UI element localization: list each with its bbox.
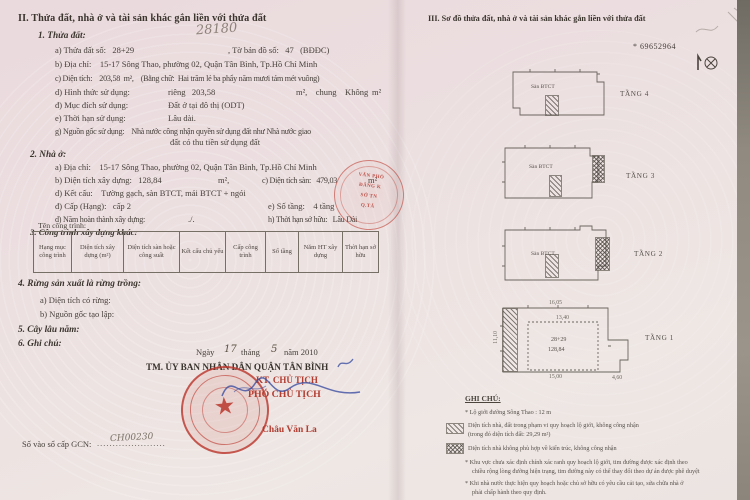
date-year: năm 2010 (284, 348, 318, 358)
stairwell-hatch-t4 (546, 96, 558, 115)
forest-area-label: a) Diện tích có rừng: (40, 296, 111, 306)
north-arrow-icon (694, 52, 720, 74)
table-header-cell: Diện tích xây dựng (m²) (72, 232, 124, 272)
floor-label-tang1: TẦNG 1 (645, 334, 674, 342)
house-address-line: a) Địa chỉ: 15-17 Sông Thao, phường 02, … (55, 163, 317, 173)
floor-label-tang2: TẦNG 2 (634, 250, 663, 258)
forest-section-title: 4. Rừng sản xuất là rừng trồng: (18, 279, 141, 290)
legend-swatch-arch-hatch (447, 444, 463, 453)
floor-slab-label: Sàn BTCT (531, 251, 555, 257)
parcel-number-on-plan: 28+29 (551, 337, 566, 344)
section3-heading: III. Sơ đồ thửa đất, nhà ở và tài sản kh… (428, 14, 645, 23)
floorplan-tang-2 (480, 222, 645, 286)
house-storeys-line: e) Số tầng: 4 tầng (268, 202, 334, 212)
house-section-title: 2. Nhà ở: (30, 150, 66, 161)
table-header-cell: Cấp công trình (226, 232, 266, 272)
use-origin-line1: g) Nguồn gốc sử dụng: Nhà nước công nhận… (55, 127, 311, 136)
house-floor-area: c) Diện tích sàn: 479,03 (262, 176, 337, 185)
constructions-table: Hạng mục công trình Diện tích xây dựng (… (33, 231, 379, 273)
use-origin-line2: đất có thu tiền sử dụng đất (170, 138, 260, 148)
handwritten-note: 28180 (196, 22, 238, 40)
floor-slab-label: Sàn BTCT (529, 164, 553, 170)
legend-note2-line2: phải chấp hành theo quy định. (472, 489, 547, 496)
parcel-section-title: 1. Thửa đất: (38, 31, 86, 42)
date-day-handwritten: 17 (224, 344, 237, 356)
legend-title: GHI CHÚ: (465, 395, 501, 404)
stairwell-hatch-t3 (550, 176, 561, 196)
use-form-label: d) Hình thức sử dụng: (55, 88, 130, 98)
legend-item1-line1: Diện tích nhà, đất trong phạm vi quy hoạ… (468, 422, 639, 429)
dim-bottom: 15,00 (549, 374, 562, 381)
legend-note2-line1: * Khi nhà nước thực hiện quy hoạch hoặc … (465, 480, 684, 487)
house-year-value: ./. (188, 215, 195, 225)
floor-slab-label: Sàn BTCT (531, 84, 555, 90)
use-form-common: m², chung Không (296, 88, 368, 98)
use-term-value: Lâu dài. (168, 114, 196, 124)
dim-right: 4,60 (612, 375, 622, 382)
road-corridor-hatch-t1 (503, 309, 517, 371)
table-header-cell: Kết cấu chủ yếu (180, 232, 226, 272)
unrecognized-area-hatch-t2 (596, 238, 609, 270)
use-form-unit: m² (372, 88, 381, 98)
floor-label-tang4: TẦNG 4 (620, 90, 649, 98)
gcn-entry-label: Số vào sổ cấp GCN: (22, 440, 91, 450)
signer-name: Châu Văn La (262, 425, 317, 436)
use-term-label: e) Thời hạn sử dụng: (55, 114, 126, 124)
dim-inner: 13,40 (556, 315, 569, 322)
unrecognized-area-hatch-t3 (593, 156, 604, 182)
house-build-area-unit: m², (218, 176, 229, 186)
use-purpose-label: đ) Mục đích sử dụng: (55, 101, 128, 111)
table-header-cell: Hạng mục công trình (34, 232, 72, 272)
date-prefix: Ngày (196, 348, 214, 358)
floor-label-tang3: TẦNG 3 (626, 172, 655, 180)
floorplan-tang-3 (480, 142, 645, 208)
perennial-section-title: 5. Cây lâu năm: (18, 325, 79, 336)
page-fold-shadow (388, 0, 406, 500)
use-form-private: riêng 203,58 (168, 88, 215, 98)
use-purpose-value: Đất ở tại đô thị (ODT) (168, 101, 245, 111)
construction-name-label: Tên công trình: (38, 222, 86, 231)
table-header-cell: Thời hạn sở hữu (343, 232, 378, 272)
serial-number: * 69652964 (633, 42, 676, 51)
legend-swatch-road-hatch (447, 424, 463, 433)
photo-background-edge (737, 0, 750, 500)
table-header-cell: Diện tích sàn hoặc công suất (124, 232, 180, 272)
forest-origin-label: b) Nguồn gốc tạo lập: (40, 310, 114, 320)
legend-note1-line1: * Khu vực chưa xác định chính xác ranh q… (465, 459, 688, 466)
parcel-address-line: b) Địa chỉ: 15-17 Sông Thao, phường 02, … (55, 60, 317, 70)
dim-left: 11,10 (493, 331, 500, 344)
house-structure-line: d) Kết cấu: Tường gạch, sàn BTCT, mái BT… (55, 189, 246, 199)
legend-note1-line2: chiều rộng lòng đường hiện trạng, tim đư… (472, 468, 700, 475)
notes-section-title: 6. Ghi chú: (18, 339, 62, 350)
legend-item1-line2: (trong đó diện tích đất: 29,29 m²) (468, 431, 550, 438)
parcel-area-line: c) Diện tích: 203,58 m², (Bằng chữ: Hai … (55, 74, 319, 83)
map-sheet-line: , Tờ bản đồ số: 47 (BĐĐC) (228, 46, 329, 56)
house-grade-line: đ) Cấp (Hạng): cấp 2 (55, 202, 131, 212)
table-header-cell: Số tầng (266, 232, 299, 272)
date-month-label: tháng (241, 348, 260, 358)
certificate-scan-page: II. Thửa đất, nhà ở và tài sản khác gắn … (0, 0, 750, 500)
dim-top: 16,05 (549, 300, 562, 307)
legend-road-width: * Lộ giới đường Sông Thao : 12 m (465, 409, 551, 416)
parcel-number-line: a) Thửa đất số: 28+29 (55, 46, 134, 56)
stairwell-hatch-t2 (546, 255, 558, 277)
table-header-cell: Năm HT xây dựng (299, 232, 343, 272)
parcel-area-on-plan: 128,84 (548, 347, 565, 354)
date-month-handwritten: 5 (271, 344, 277, 356)
house-build-area: b) Diện tích xây dựng: 128,84 (55, 176, 162, 186)
legend-item2: Diện tích nhà không phù hợp về kiến trúc… (468, 445, 617, 452)
blue-check-mark (336, 356, 356, 372)
